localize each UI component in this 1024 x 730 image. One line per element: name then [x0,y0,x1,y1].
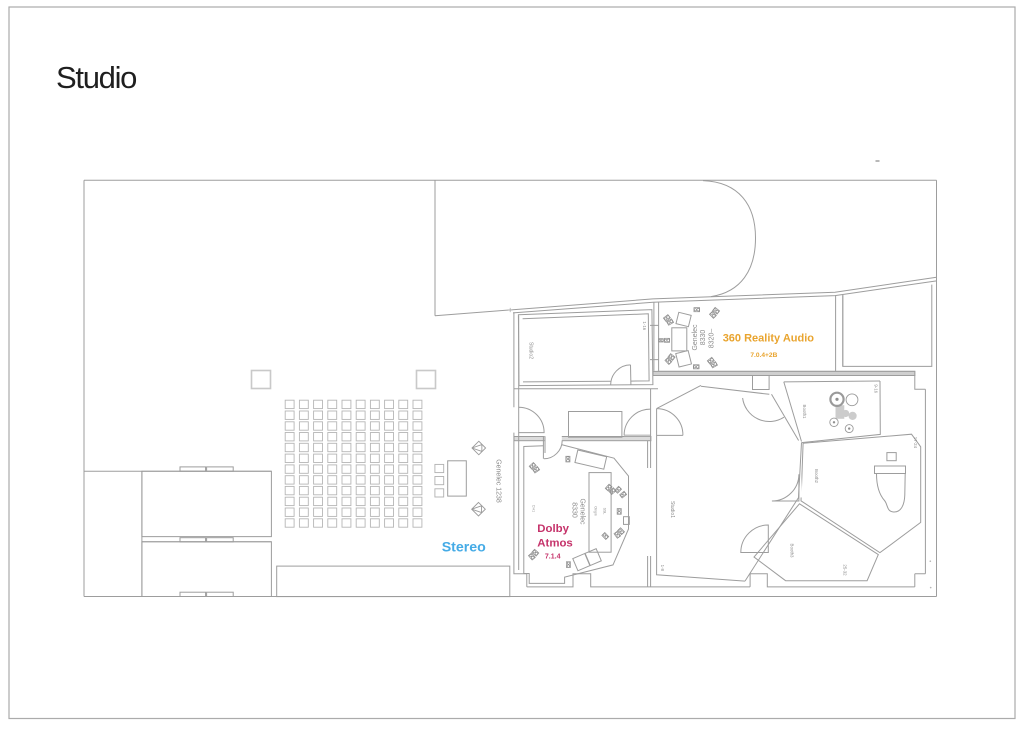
svg-text:Studio: Studio [56,60,136,95]
svg-text:Booth1: Booth1 [802,405,807,419]
svg-text:7.1.4: 7.1.4 [545,554,561,561]
svg-text:8330: 8330 [571,502,578,518]
svg-text:1-16: 1-16 [642,321,647,330]
svg-text:8330: 8330 [700,330,707,346]
svg-text:Stereo: Stereo [442,540,486,556]
svg-text:1-8: 1-8 [660,565,665,572]
svg-text:17-24: 17-24 [913,437,918,449]
svg-text:Genelec: Genelec [578,498,585,525]
svg-text:Dolby: Dolby [537,523,569,535]
svg-text:360 Reality Audio: 360 Reality Audio [723,333,815,345]
svg-text:Origin: Origin [594,506,598,516]
svg-text:Booth2: Booth2 [814,469,819,483]
svg-text:CH1: CH1 [531,505,535,513]
svg-text:Studio2: Studio2 [528,342,534,359]
svg-text:SSL: SSL [603,508,607,515]
svg-text:Genelec 1238: Genelec 1238 [495,459,502,503]
svg-text:Booth3: Booth3 [790,544,795,558]
svg-text:7.0.4+2B: 7.0.4+2B [750,352,777,359]
svg-text:8320–: 8320– [709,329,716,349]
svg-text:Atmos: Atmos [537,537,572,549]
svg-text:Genelec: Genelec [692,324,699,351]
svg-text:25-32: 25-32 [843,564,848,576]
svg-text:Studio1: Studio1 [669,501,675,518]
svg-text:9-16: 9-16 [874,384,879,393]
